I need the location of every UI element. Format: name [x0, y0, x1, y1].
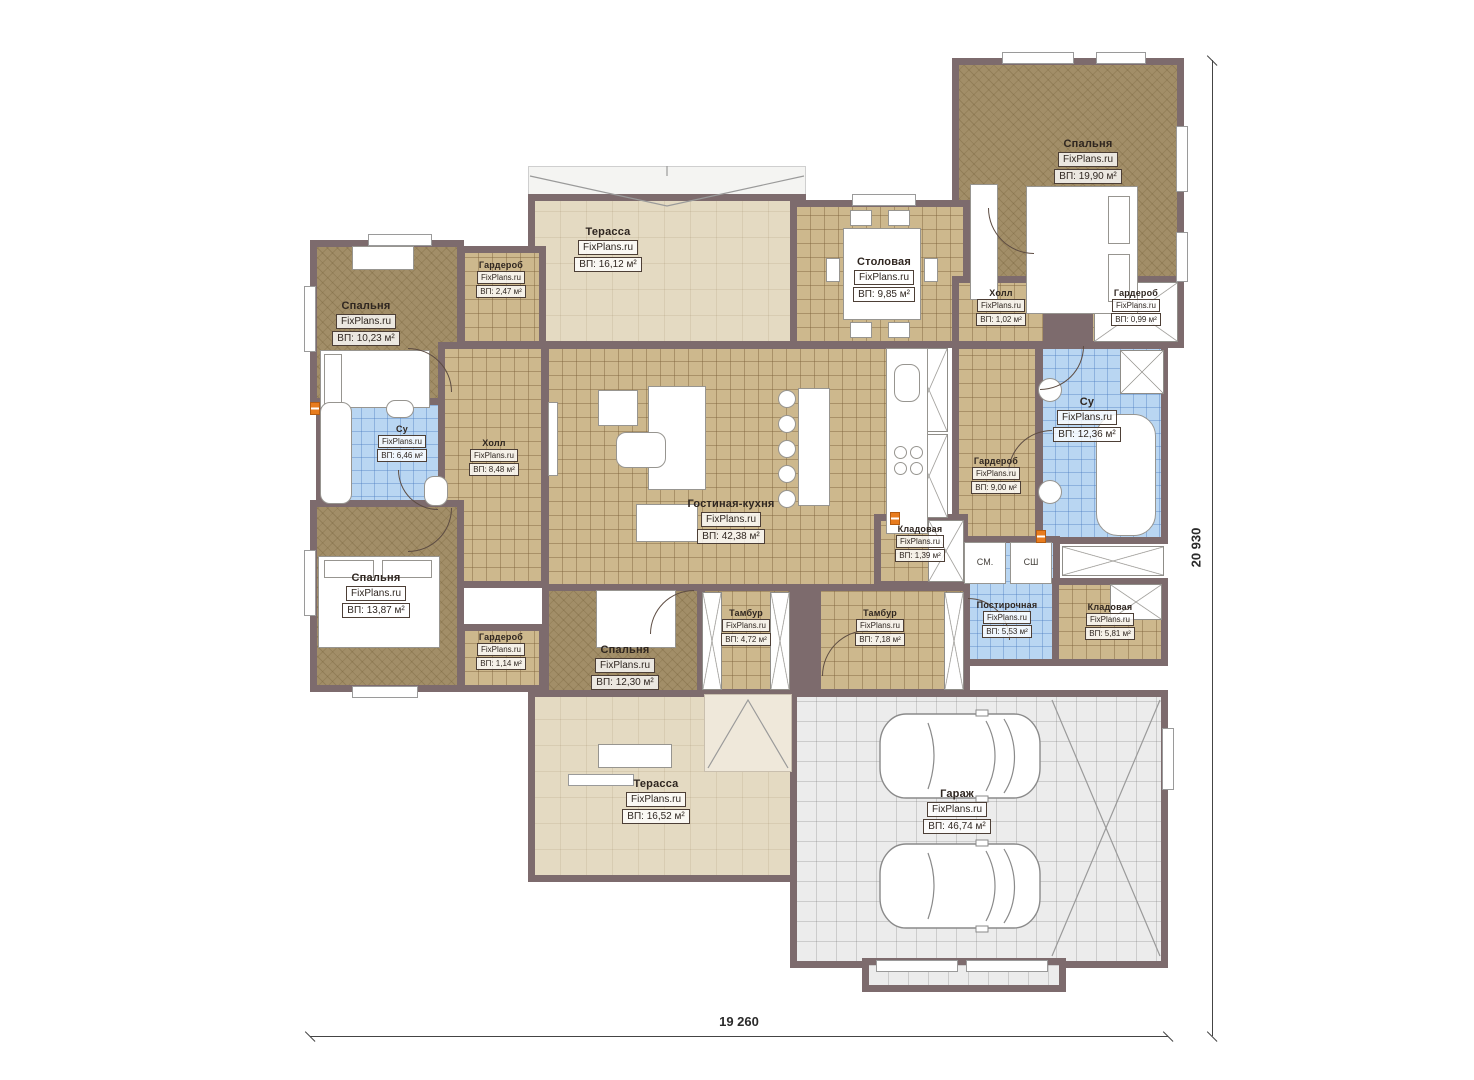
room-label-hall-left: Холл FixPlans.ru ВП: 8,48 м²: [452, 438, 536, 476]
room-watermark: FixPlans.ru: [477, 271, 525, 284]
room-name: Су: [362, 424, 442, 434]
washbasin: [386, 400, 414, 418]
room-name: Терасса: [606, 778, 706, 790]
room-watermark: FixPlans.ru: [1058, 152, 1118, 167]
room-area: ВП: 6,46 м²: [377, 449, 427, 462]
room-label-bedroom-top-right: Спальня FixPlans.ru ВП: 19,90 м²: [1032, 138, 1144, 184]
coffee-table: [616, 432, 666, 468]
bathtub: [320, 402, 352, 504]
room-name: Су: [1040, 396, 1134, 408]
window: [1176, 232, 1188, 282]
room-label-bath-right: Су FixPlans.ru ВП: 12,36 м²: [1040, 396, 1134, 442]
chair: [850, 322, 872, 338]
room-watermark: FixPlans.ru: [1057, 410, 1117, 425]
room-name: Кладовая: [876, 524, 964, 534]
pillow: [324, 354, 342, 404]
room-name: Холл: [960, 288, 1042, 298]
window: [304, 550, 316, 616]
washbasin: [1038, 480, 1062, 504]
window: [304, 286, 316, 352]
stove-burner: [910, 462, 923, 475]
tv-panel: [548, 402, 558, 476]
wardrobe-cabinet: [970, 184, 998, 300]
entry-porch: [704, 694, 792, 772]
room-name: Спальня: [326, 572, 426, 584]
kitchen-sink: [894, 364, 920, 402]
room-label-terrace-bottom: Терасса FixPlans.ru ВП: 16,52 м²: [606, 778, 706, 824]
window: [1002, 52, 1074, 64]
shower-cabin: [1120, 350, 1164, 394]
dimension-line-right: [1212, 60, 1213, 1036]
room-label-tambour-right: Тамбур FixPlans.ru ВП: 7,18 м²: [834, 608, 926, 646]
room-name: Тамбур: [702, 608, 790, 618]
window: [352, 686, 418, 698]
room-watermark: FixPlans.ru: [927, 802, 987, 817]
desk: [598, 744, 672, 768]
room-area: ВП: 16,52 м²: [622, 809, 689, 824]
room-watermark: FixPlans.ru: [626, 792, 686, 807]
room-area: ВП: 1,39 м²: [895, 549, 945, 562]
room-area: ВП: 0,99 м²: [1111, 313, 1161, 326]
room-label-bedroom-left: Спальня FixPlans.ru ВП: 13,87 м²: [326, 572, 426, 618]
room-watermark: FixPlans.ru: [346, 586, 406, 601]
room-name: Спальня: [576, 644, 674, 656]
window: [1162, 728, 1174, 790]
room-area: ВП: 12,36 м²: [1053, 427, 1120, 442]
chair: [888, 322, 910, 338]
room-name: Тамбур: [834, 608, 926, 618]
window: [1096, 52, 1146, 64]
room-label-living-kitchen: Гостиная-кухня FixPlans.ru ВП: 42,38 м²: [676, 498, 786, 544]
room-watermark: FixPlans.ru: [977, 299, 1025, 312]
kitchen-island: [798, 388, 830, 506]
bar-stool: [778, 415, 796, 433]
room-label-hall-small: Холл FixPlans.ru ВП: 1,02 м²: [960, 288, 1042, 326]
dimension-line-bottom: [310, 1036, 1168, 1037]
pillow: [1108, 196, 1130, 244]
room-name: Терасса: [552, 226, 664, 238]
room-watermark: FixPlans.ru: [701, 512, 761, 527]
room-label-pantry-right: Кладовая FixPlans.ru ВП: 5,81 м²: [1060, 602, 1160, 640]
room-name: Холл: [452, 438, 536, 448]
room-label-terrace-top: Терасса FixPlans.ru ВП: 16,12 м²: [552, 226, 664, 272]
drying-machine-label: СШ: [1010, 557, 1052, 567]
wall-fill: [792, 584, 818, 696]
room-area: ВП: 8,48 м²: [469, 463, 519, 476]
room-name: Гараж: [906, 788, 1008, 800]
room-label-bedroom-top-left: Спальня FixPlans.ru ВП: 10,23 м²: [316, 300, 416, 346]
stove-burner: [894, 446, 907, 459]
room-watermark: FixPlans.ru: [578, 240, 638, 255]
room-name: Спальня: [316, 300, 416, 312]
room-label-tambour-left: Тамбур FixPlans.ru ВП: 4,72 м²: [702, 608, 790, 646]
wardrobe-cabinet: [352, 246, 414, 270]
room-label-wardrobe-bottom-left: Гардероб FixPlans.ru ВП: 1,14 м²: [460, 632, 542, 670]
room-watermark: FixPlans.ru: [477, 643, 525, 656]
window: [1176, 126, 1188, 192]
room-area: ВП: 46,74 м²: [923, 819, 990, 834]
room-watermark: FixPlans.ru: [856, 619, 904, 632]
room-label-wardrobe-top-right: Гардероб FixPlans.ru ВП: 0,99 м²: [1094, 288, 1178, 326]
bar-stool: [778, 465, 796, 483]
room-area: ВП: 16,12 м²: [574, 257, 641, 272]
room-living-kitchen: [542, 342, 906, 592]
socket-marker: [1036, 530, 1046, 543]
window: [852, 194, 916, 206]
bar-stool: [778, 440, 796, 458]
chair: [850, 210, 872, 226]
room-name: Гардероб: [952, 456, 1040, 466]
room-area: ВП: 9,00 м²: [971, 481, 1021, 494]
window: [368, 234, 432, 246]
room-name: Постирочная: [958, 600, 1056, 610]
room-label-dining: Столовая FixPlans.ru ВП: 9,85 м²: [836, 256, 932, 302]
dimension-height-label: 20 930: [1189, 508, 1204, 588]
room-name: Гардероб: [460, 260, 542, 270]
room-area: ВП: 19,90 м²: [1054, 169, 1121, 184]
room-area: ВП: 7,18 м²: [855, 633, 905, 646]
stove-burner: [894, 462, 907, 475]
room-name: Столовая: [836, 256, 932, 268]
room-label-garage: Гараж FixPlans.ru ВП: 46,74 м²: [906, 788, 1008, 834]
armchair: [598, 390, 638, 426]
room-area: ВП: 5,53 м²: [982, 625, 1032, 638]
room-watermark: FixPlans.ru: [595, 658, 655, 673]
room-area: ВП: 1,02 м²: [976, 313, 1026, 326]
room-label-bedroom-bottom: Спальня FixPlans.ru ВП: 12,30 м²: [576, 644, 674, 690]
room-watermark: FixPlans.ru: [1086, 613, 1134, 626]
room-watermark: FixPlans.ru: [378, 435, 426, 448]
room-watermark: FixPlans.ru: [336, 314, 396, 329]
bar-stool: [778, 390, 796, 408]
room-name: Гардероб: [1094, 288, 1178, 298]
floor-plan-canvas: СМ. СШ: [0, 0, 1474, 1080]
room-label-wardrobe-top-left: Гардероб FixPlans.ru ВП: 2,47 м²: [460, 260, 542, 298]
room-name: Спальня: [1032, 138, 1144, 150]
dimension-width-label: 19 260: [310, 1014, 1168, 1029]
room-watermark: FixPlans.ru: [722, 619, 770, 632]
room-area: ВП: 9,85 м²: [853, 287, 915, 302]
closet-crossed: [1062, 546, 1164, 576]
room-watermark: FixPlans.ru: [896, 535, 944, 548]
room-area: ВП: 10,23 м²: [332, 331, 399, 346]
socket-marker: [310, 402, 320, 415]
washing-machine-label: СМ.: [964, 557, 1006, 567]
room-name: Кладовая: [1060, 602, 1160, 612]
room-label-laundry: Постирочная FixPlans.ru ВП: 5,53 м²: [958, 600, 1056, 638]
room-area: ВП: 2,47 м²: [476, 285, 526, 298]
room-name: Гардероб: [460, 632, 542, 642]
room-label-wardrobe-right: Гардероб FixPlans.ru ВП: 9,00 м²: [952, 456, 1040, 494]
chair: [888, 210, 910, 226]
room-name: Гостиная-кухня: [676, 498, 786, 510]
garage-door: [876, 960, 958, 972]
room-watermark: FixPlans.ru: [470, 449, 518, 462]
room-watermark: FixPlans.ru: [972, 467, 1020, 480]
room-area: ВП: 13,87 м²: [342, 603, 409, 618]
room-label-bath-left: Су FixPlans.ru ВП: 6,46 м²: [362, 424, 442, 462]
room-label-pantry-small: Кладовая FixPlans.ru ВП: 1,39 м²: [876, 524, 964, 562]
room-area: ВП: 1,14 м²: [476, 657, 526, 670]
garage-door: [966, 960, 1048, 972]
stove-burner: [910, 446, 923, 459]
room-area: ВП: 5,81 м²: [1085, 627, 1135, 640]
room-watermark: FixPlans.ru: [1112, 299, 1160, 312]
room-watermark: FixPlans.ru: [983, 611, 1031, 624]
room-area: ВП: 12,30 м²: [591, 675, 658, 690]
room-area: ВП: 42,38 м²: [697, 529, 764, 544]
room-area: ВП: 4,72 м²: [721, 633, 771, 646]
room-watermark: FixPlans.ru: [854, 270, 914, 285]
